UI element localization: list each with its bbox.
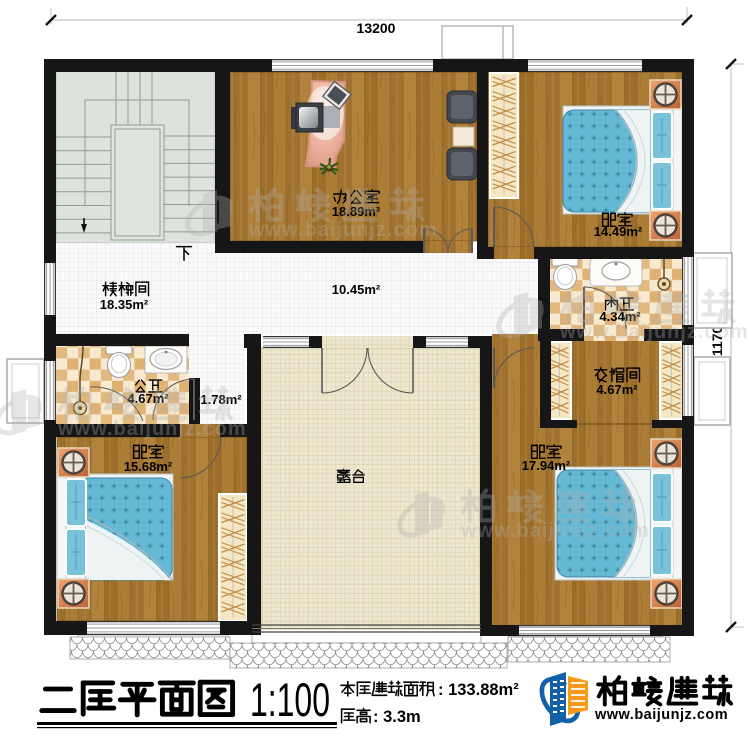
svg-text:15.68m²: 15.68m² bbox=[124, 459, 173, 474]
svg-text:www.baijunjz.com: www.baijunjz.com bbox=[594, 707, 728, 723]
svg-text:: 3.3m: : 3.3m bbox=[373, 708, 421, 726]
svg-text:www.baijunjz.com: www.baijunjz.com bbox=[559, 321, 749, 343]
svg-text:4.67m²: 4.67m² bbox=[596, 382, 638, 397]
svg-text:14.49m²: 14.49m² bbox=[594, 224, 643, 239]
svg-text:18.35m²: 18.35m² bbox=[100, 297, 149, 312]
svg-text:www.baijunjz.com: www.baijunjz.com bbox=[57, 418, 247, 440]
svg-text:1:100: 1:100 bbox=[250, 673, 330, 726]
svg-text:10.45m²: 10.45m² bbox=[332, 282, 381, 297]
svg-text:13200: 13200 bbox=[357, 20, 396, 36]
svg-text:www.baijunjz.com: www.baijunjz.com bbox=[248, 219, 438, 241]
svg-text:17.94m²: 17.94m² bbox=[522, 458, 571, 473]
svg-text:www.baijunjz.com: www.baijunjz.com bbox=[460, 520, 650, 542]
svg-text:: 133.88m²: : 133.88m² bbox=[438, 681, 519, 699]
